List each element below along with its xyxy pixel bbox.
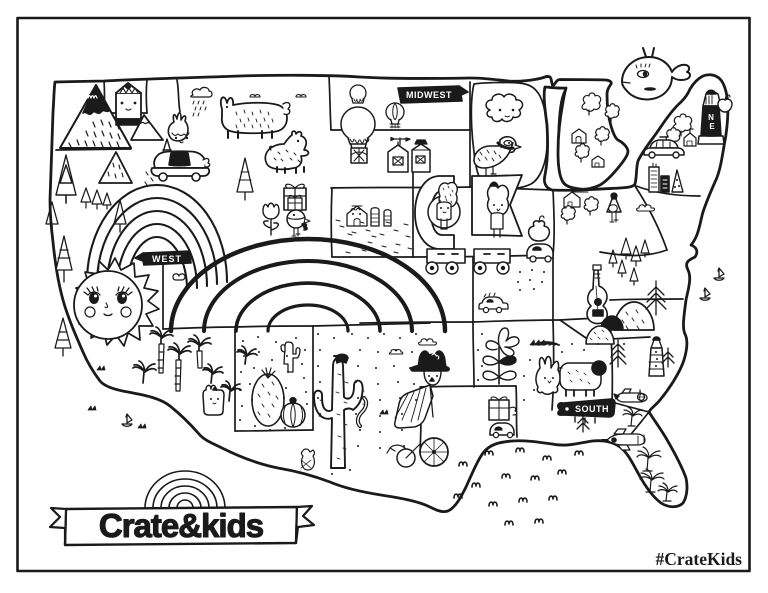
svg-text:E: E <box>709 122 715 131</box>
svg-text:SOUTH: SOUTH <box>575 404 609 414</box>
svg-text:#CrateKids: #CrateKids <box>655 549 742 569</box>
svg-text:Crate&kids: Crate&kids <box>99 507 263 544</box>
svg-text:MIDWEST: MIDWEST <box>406 90 452 100</box>
svg-text:N: N <box>708 113 714 122</box>
svg-text:WEST: WEST <box>152 254 182 264</box>
